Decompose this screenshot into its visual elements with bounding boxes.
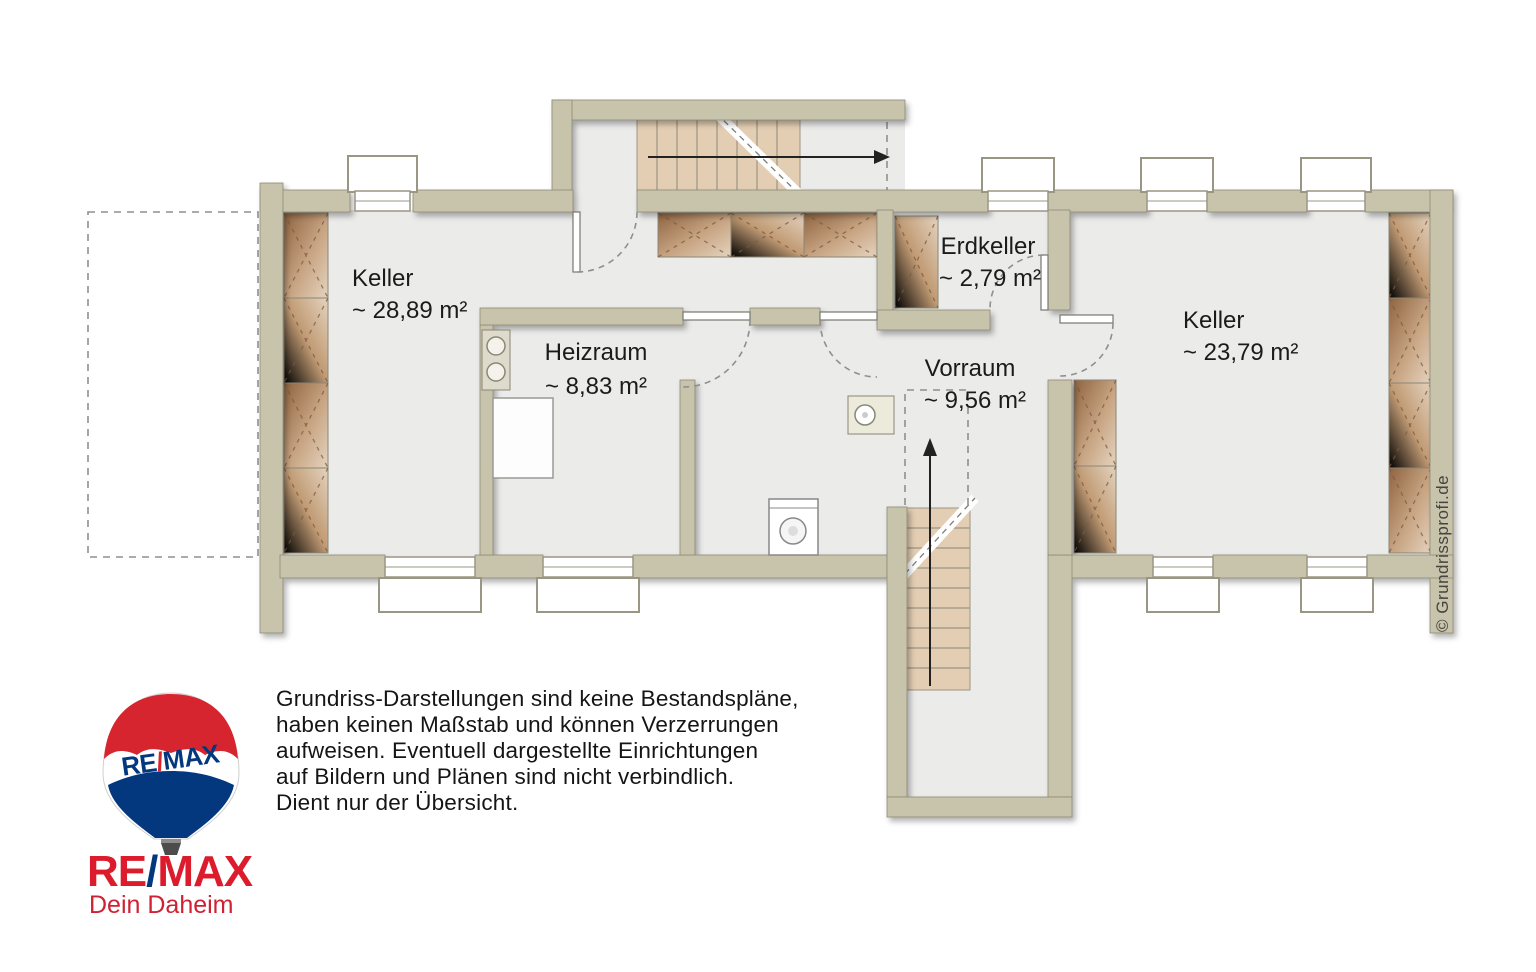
shelf-right-keller-right [1389, 213, 1431, 553]
heating-unit [493, 398, 553, 478]
room-area-erdkeller: ~ 2,79 m² [939, 265, 1041, 292]
remax-wordmark: RE/MAX [87, 847, 253, 896]
room-area-vorraum: ~ 9,56 m² [924, 387, 1026, 414]
shelf-erdkeller [895, 216, 938, 308]
shelf-right-keller-left [1074, 380, 1116, 553]
room-label-keller-right: Keller [1183, 307, 1244, 334]
boiler-connections [482, 330, 510, 390]
room-area-keller-left: ~ 28,89 m² [352, 297, 467, 324]
window-top-1 [348, 156, 417, 211]
room-label-erdkeller: Erdkeller [941, 233, 1036, 260]
window-bottom-3 [1147, 557, 1219, 612]
remax-balloon-icon: RE/MAX [103, 693, 239, 855]
remax-tagline: Dein Daheim [89, 891, 234, 919]
wordmark-max: MAX [157, 847, 252, 896]
room-label-vorraum: Vorraum [925, 355, 1016, 382]
remax-logo: RE/MAX RE/MAX Dein Daheim [85, 666, 365, 930]
window-bottom-2 [537, 557, 639, 612]
wordmark-re: RE [87, 847, 146, 896]
window-bottom-1 [379, 557, 481, 612]
wordmark-slash: / [146, 847, 158, 896]
watermark-grundrissprofi: © Grundrissprofi.de [1433, 475, 1452, 632]
window-top-4 [1301, 158, 1371, 211]
room-area-keller-right: ~ 23,79 m² [1183, 339, 1298, 366]
washing-machine [769, 499, 818, 555]
balloon-basket-rim [161, 839, 181, 843]
balloon-re: RE [119, 747, 158, 782]
shelf-under-stairs [658, 213, 877, 257]
floor-main [283, 210, 1430, 557]
wall-meter-box [848, 396, 894, 434]
window-bottom-4 [1301, 557, 1373, 612]
window-top-3 [1141, 158, 1213, 211]
room-label-heizraum: Heizraum [545, 339, 648, 366]
shelf-left-keller [284, 213, 328, 553]
room-label-keller-left: Keller [352, 265, 413, 292]
window-top-2 [982, 158, 1054, 211]
outside-dashed-area [88, 212, 258, 557]
room-area-heizraum: ~ 8,83 m² [545, 373, 647, 400]
floorplan-canvas: Keller ~ 28,89 m² Heizraum ~ 8,83 m² Erd… [0, 0, 1536, 972]
